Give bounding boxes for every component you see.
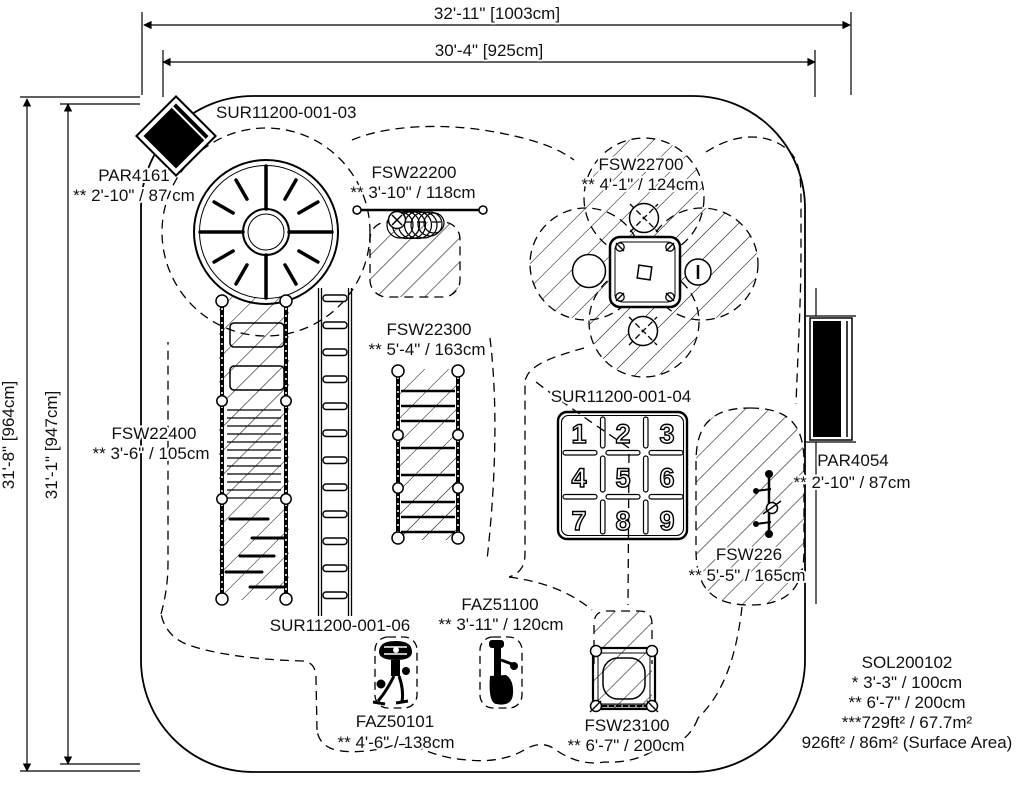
label-sur11200-001-06: SUR11200-001-06 — [270, 616, 411, 635]
summary-line-2: ** 6'-7" / 200cm — [849, 693, 966, 712]
label-faz51100: FAZ51100 — [461, 595, 538, 614]
keypad-digit: 2 — [615, 419, 630, 449]
dim-left-inner: 31'-1" [947cm] — [42, 391, 61, 500]
label-par4054: PAR4054 — [817, 451, 889, 470]
height-fsw23100: ** 6'-7" / 200cm — [568, 736, 685, 755]
height-fsw22700: ** 4'-1" / 124cm — [582, 175, 699, 194]
keypad-digit: 9 — [659, 506, 674, 536]
site-plan-page: 32'-11" [1003cm] 30'-4" [925cm] 31'-8" [… — [0, 0, 1024, 786]
label-fsw23100: FSW23100 — [584, 716, 669, 735]
label-fsw22400: FSW22400 — [111, 424, 196, 443]
label-fsw22700: FSW22700 — [598, 155, 683, 174]
label-fsw22200: FSW22200 — [371, 163, 456, 182]
height-fsw226: ** 5'-5" / 165cm — [689, 566, 806, 585]
height-fsw22300: ** 5'-4" / 163cm — [369, 340, 486, 359]
keypad-digit: 6 — [659, 463, 674, 493]
height-faz51100: ** 3'-11" / 120cm — [438, 615, 563, 634]
label-sur11200-001-04: SUR11200-001-04 — [551, 387, 692, 406]
dim-top-outer: 32'-11" [1003cm] — [434, 4, 560, 23]
site-plan-drawing: 32'-11" [1003cm] 30'-4" [925cm] 31'-8" [… — [0, 0, 1024, 786]
label-par4161: PAR4161 — [98, 166, 170, 185]
keypad-digit: 8 — [615, 506, 630, 536]
label-sol200102: SOL200102 — [862, 653, 953, 672]
height-faz50101: ** 4'-6" / 138cm — [338, 733, 455, 752]
dim-left-outer: 31'-8" [964cm] — [0, 381, 18, 490]
label-fsw226: FSW226 — [716, 545, 782, 564]
label-fsw22300: FSW22300 — [386, 320, 471, 339]
dim-top-inner: 30'-4" [925cm] — [435, 41, 544, 60]
summary-line-4: 926ft² / 86m² (Surface Area) — [802, 733, 1013, 752]
label-faz50101: FAZ50101 — [356, 712, 434, 731]
height-par4054: ** 2'-10" / 87cm — [794, 473, 911, 492]
keypad-digit: 5 — [615, 463, 630, 493]
summary-line-1: * 3'-3" / 100cm — [852, 673, 962, 692]
height-par4161: ** 2'-10" / 87 cm — [73, 186, 195, 205]
height-fsw22200: ** 3'-10" / 118cm — [350, 183, 475, 202]
keypad-digit: 1 — [571, 419, 586, 449]
keypad-digit: 7 — [571, 506, 586, 536]
number-keypad-surface: 1 2 3 4 5 6 7 8 9 — [558, 412, 687, 539]
keypad-digit: 4 — [571, 463, 586, 493]
keypad-digit: 3 — [659, 419, 674, 449]
label-sur11200-001-03: SUR11200-001-03 — [216, 103, 357, 122]
summary-line-3: ***729ft² / 67.7m² — [842, 713, 973, 732]
height-fsw22400: ** 3'-6" / 105cm — [93, 444, 210, 463]
